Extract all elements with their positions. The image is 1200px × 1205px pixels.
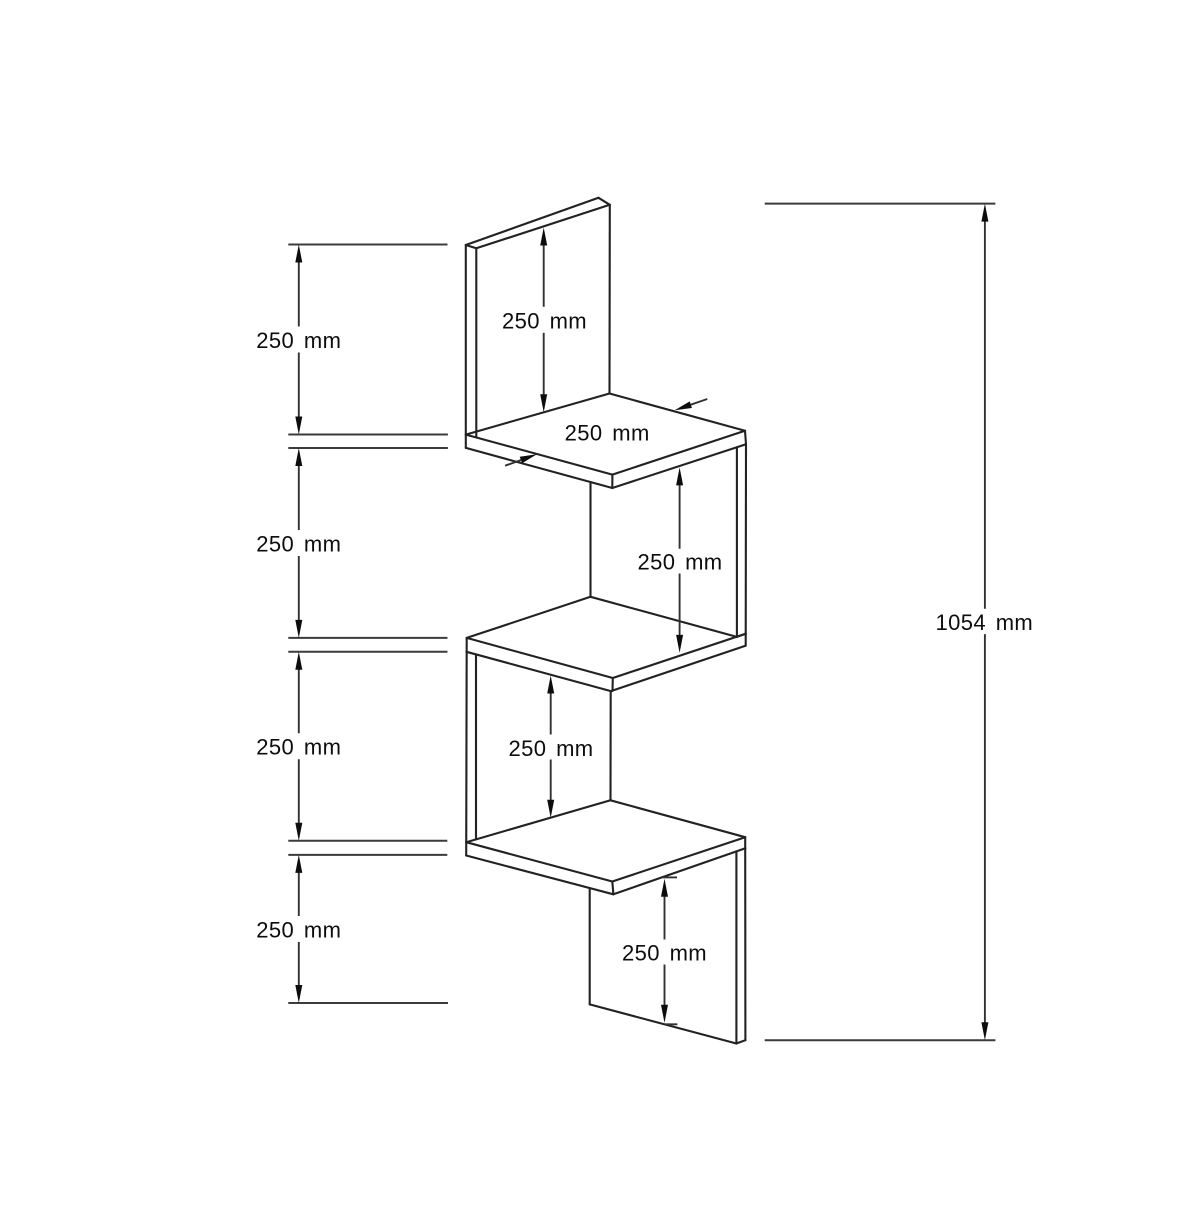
svg-text:250 mm: 250 mm [256,918,341,943]
svg-text:250 mm: 250 mm [565,421,650,446]
svg-text:250 mm: 250 mm [256,735,341,760]
svg-text:250 mm: 250 mm [508,736,593,761]
svg-text:250 mm: 250 mm [637,550,722,575]
svg-text:250 mm: 250 mm [502,308,587,333]
svg-text:250 mm: 250 mm [622,941,707,966]
svg-text:1054 mm: 1054 mm [935,610,1033,635]
svg-text:250 mm: 250 mm [256,328,341,353]
svg-text:250 mm: 250 mm [256,532,341,557]
